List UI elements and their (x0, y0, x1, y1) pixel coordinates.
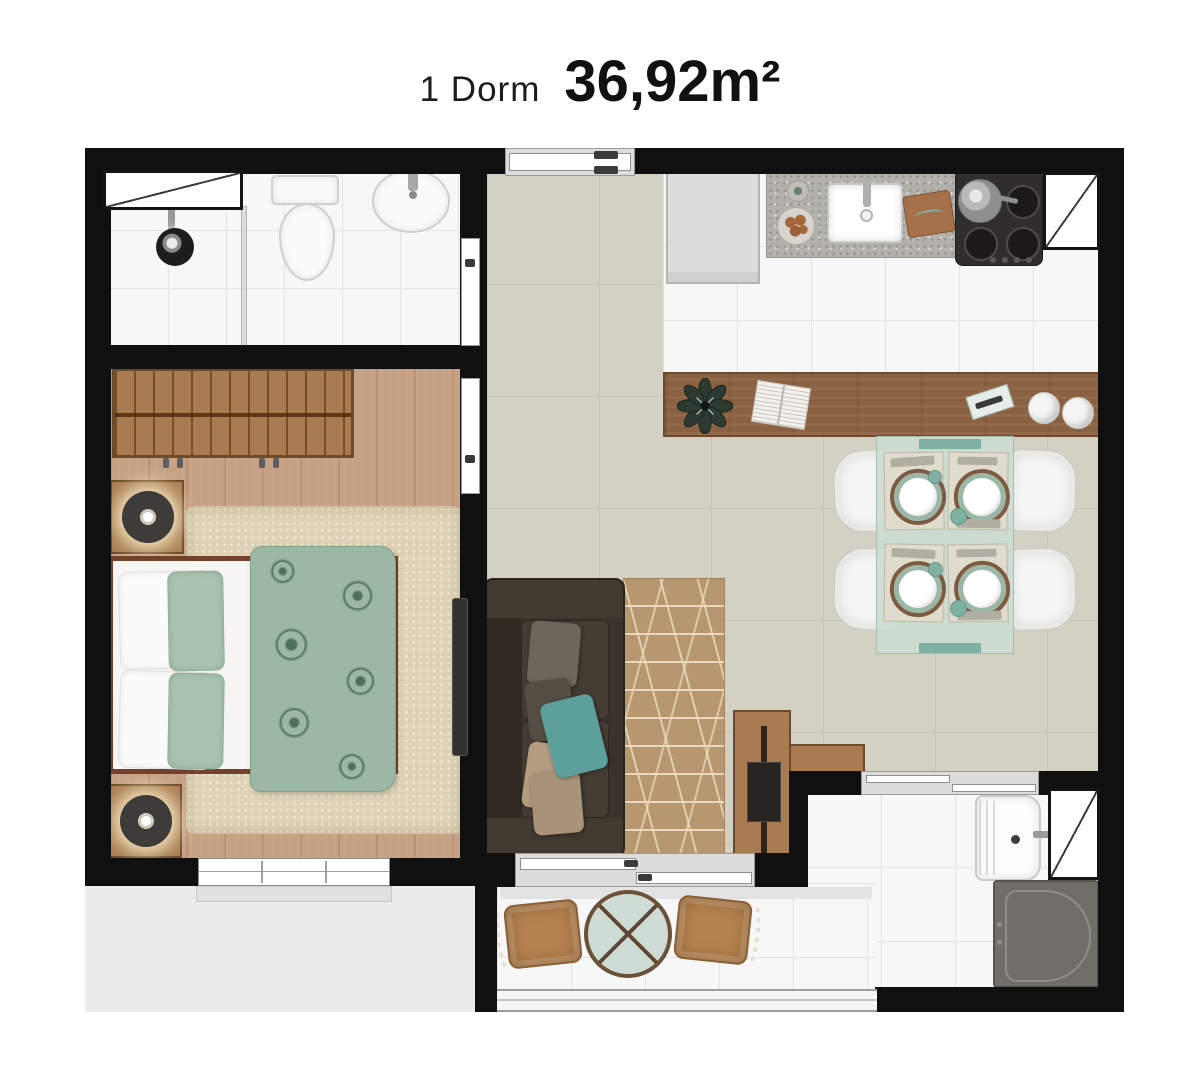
bathroom-window (103, 170, 243, 210)
door-handle (465, 259, 475, 267)
nightstand-left (110, 480, 184, 554)
wall-service-bottom (875, 987, 1124, 1012)
window-mullion (325, 861, 327, 883)
window-sill (196, 886, 392, 902)
balcony-glass-railing (497, 989, 877, 1012)
toilet-tank (271, 175, 339, 205)
unit-area-value: 36,92m² (564, 48, 780, 115)
cutlery (957, 457, 997, 466)
basin-faucet (408, 171, 418, 191)
door-panel (636, 872, 752, 884)
sofa-armrest (485, 580, 623, 618)
bedroom-sliding-door (461, 378, 480, 494)
cutlery (890, 455, 935, 467)
cooktop-knob (1026, 257, 1032, 263)
fruit-bowl (777, 207, 815, 245)
sofa (483, 578, 625, 858)
door-handle (638, 874, 652, 881)
shower-glass-partition (241, 206, 247, 347)
plant-icon (677, 378, 733, 434)
dining-chair (1007, 547, 1078, 631)
table-runner (919, 643, 981, 653)
kitchen-counter (766, 172, 958, 258)
throw-pillow (529, 770, 584, 836)
napkin-ring (950, 600, 967, 617)
tv (747, 762, 781, 822)
wardrobe-hook (259, 458, 265, 468)
cooktop-knob (1014, 257, 1020, 263)
window-mullion (261, 861, 263, 883)
washbasin (372, 169, 450, 233)
service-sliding-window (861, 771, 1039, 795)
wall-left (85, 148, 111, 886)
wall-bath-bedroom (85, 345, 462, 369)
shaft-diagonal (1046, 175, 1097, 247)
exterior-area (85, 886, 477, 1012)
open-book (751, 380, 811, 430)
door-handle (465, 455, 475, 463)
table-runner (919, 439, 981, 449)
cutting-board (902, 190, 956, 239)
floorplan-page: 1 Dorm 36,92m² (0, 0, 1200, 1079)
patio-chair-left (503, 898, 583, 969)
placemat (883, 451, 944, 530)
entry-door-handle (594, 151, 618, 159)
shower-head (156, 228, 194, 266)
service-duct-shaft (1048, 788, 1100, 880)
wall-service-window-left (789, 771, 863, 795)
napkin-ring (928, 562, 943, 577)
washer-door (1005, 890, 1091, 982)
cutlery (956, 549, 996, 558)
kitchen-sink (827, 183, 903, 243)
tray-remote (965, 384, 1014, 420)
tv-rack (733, 710, 791, 872)
sofa-backrest (485, 580, 521, 856)
remote-control (975, 395, 1003, 409)
napkin-ring (928, 470, 942, 484)
wardrobe-hook (177, 458, 183, 468)
plan-title: 1 Dorm 36,92m² (0, 48, 1200, 128)
wall-right (1098, 148, 1124, 1012)
counter-plant (787, 180, 809, 202)
sink-drain (860, 209, 873, 222)
table-lamp (120, 795, 172, 847)
shaft-diagonal (1051, 791, 1097, 877)
burner (1006, 227, 1040, 261)
dining-chair (1007, 449, 1078, 533)
bedroom-tv (452, 598, 468, 756)
unit-type-label: 1 Dorm (420, 70, 541, 110)
laundry-tank (975, 795, 1041, 881)
wardrobe (112, 368, 354, 458)
refrigerator (666, 172, 760, 284)
wall-balcony-jamb-left (482, 853, 517, 887)
washing-machine (993, 880, 1099, 988)
window-diagonal (106, 173, 240, 207)
board-garnish (914, 208, 945, 223)
washer-hinge (997, 940, 1002, 945)
table-lamp (122, 491, 174, 543)
bowl (1062, 397, 1094, 429)
window-panel (866, 775, 950, 783)
placemat (883, 543, 944, 622)
washer-hinge (997, 922, 1002, 927)
entry-door (505, 148, 635, 176)
cutlery (891, 548, 935, 559)
accent-pillow (167, 571, 225, 672)
throw-pillow (526, 620, 581, 688)
door-handle (624, 860, 638, 867)
bar-counter (663, 372, 1100, 437)
cooktop-knob (990, 257, 996, 263)
bedroom-window (198, 858, 390, 886)
wall-balcony-left (475, 886, 497, 1012)
accent-pillow (167, 673, 225, 770)
window-panel (952, 784, 1036, 792)
bistro-table (584, 890, 672, 978)
door-panel (520, 858, 636, 870)
cooktop (955, 172, 1043, 266)
tank-ribs (979, 801, 997, 875)
living-rug (623, 578, 725, 858)
kitchen-duct-shaft (1043, 172, 1100, 250)
burner (964, 227, 998, 261)
tank-drain (1011, 835, 1020, 844)
bathroom-sliding-door (461, 238, 480, 346)
entry-door-handle (594, 166, 618, 174)
wardrobe-hook (163, 458, 169, 468)
wardrobe-hook (273, 458, 279, 468)
balcony-sliding-door (515, 853, 755, 887)
bowl (1028, 392, 1060, 424)
floral-duvet (250, 546, 396, 792)
patio-chair-right (673, 894, 753, 965)
steel-pan (958, 179, 1002, 223)
nightstand-right (108, 784, 182, 858)
cooktop-knob (1002, 257, 1008, 263)
basin-drain (409, 191, 417, 199)
napkin-ring (950, 508, 967, 525)
sink-faucet (863, 179, 871, 207)
